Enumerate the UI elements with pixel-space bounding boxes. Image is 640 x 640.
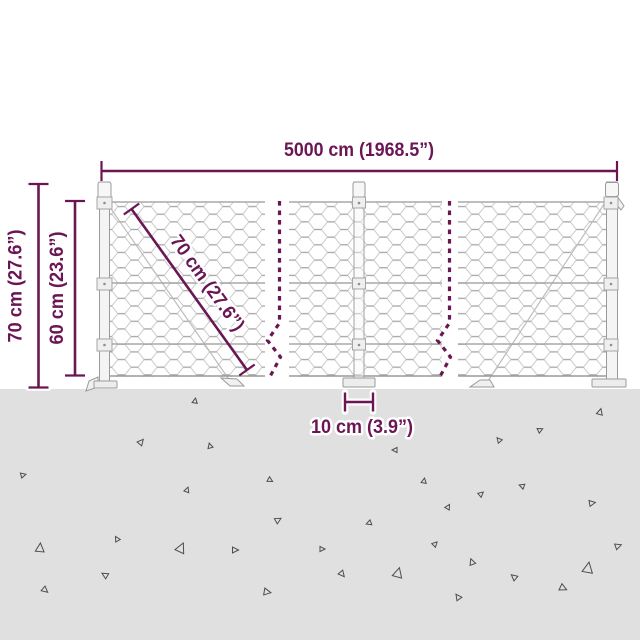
svg-text:70 cm (27.6”): 70 cm (27.6”) [6, 230, 27, 343]
svg-text:60 cm (23.6”): 60 cm (23.6”) [47, 232, 68, 345]
svg-text:5000 cm (1968.5”): 5000 cm (1968.5”) [284, 140, 434, 161]
svg-text:10 cm (3.9”): 10 cm (3.9”) [311, 417, 413, 438]
